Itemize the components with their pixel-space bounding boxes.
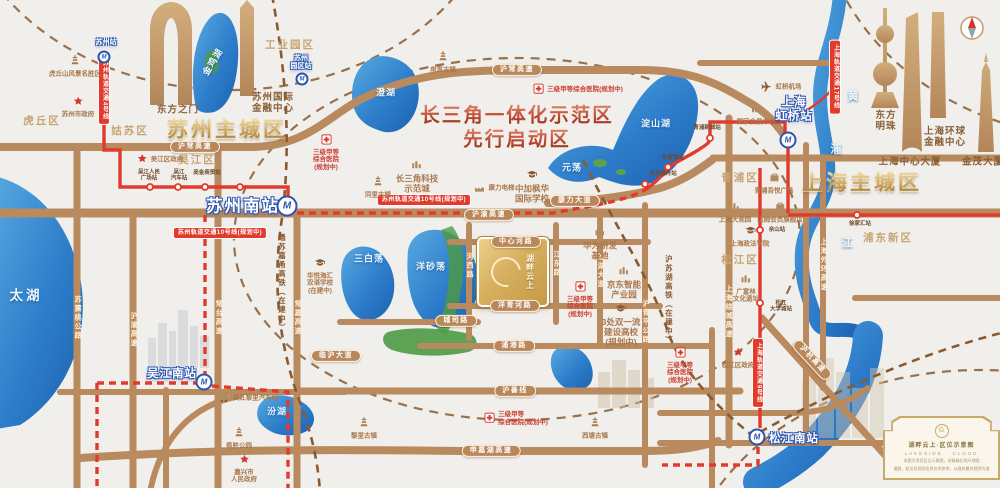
road-pill-text: 城司路 [443,317,469,325]
road-pill-text: 申嘉湖高速 [470,447,513,455]
poi-label: 西塘古镇 [582,432,608,440]
poi-label: 国家会展中心 [737,118,776,126]
metro-station-icon: M [749,429,766,446]
demo-text: 长三角一体化示范区 [420,105,614,128]
vroad-text: 沪渝高速 [129,312,137,348]
metro-station-icon: M [780,132,797,149]
poi-label: 建设高校 [602,327,641,337]
district: 工业园区 [265,39,315,51]
station-minor-text: 汽车站 [171,176,188,182]
station-name: 苏州园区站 [291,55,312,72]
road-pill: 临沪大道 [311,350,361,362]
station-minor: 东方绿舟站 [649,171,677,177]
poi-pagoda: 西塘古镇 [582,416,608,439]
vroad: 沪青平公路 [641,300,649,345]
poi-city: 长三角科技示范城 [396,158,439,193]
lake-label: 元荡 [562,163,582,174]
poi-label: 人民政府 [231,476,257,484]
poi-pagoda: 甪直古镇 [430,50,456,73]
river-char: 江 [842,238,853,251]
road-pill-text: 沪常高速 [178,143,212,151]
cross-icon [675,347,686,361]
landmark-label: 东方之门 [157,104,199,115]
poi-label: 基地 [583,251,617,261]
landmark-label-text: 东方 [875,110,896,121]
river-char: 浦 [831,144,842,157]
plaque-subtitle: LAKESIDE · CLOUD [905,451,979,456]
district-text: 工业园区 [265,39,315,51]
cross-icon [575,281,586,295]
poi-label: 文化遗址 [733,296,759,304]
road-pill-text: 临沪大道 [319,352,353,360]
oriental-pearl-illustration [871,8,899,108]
station-minor-text: 朱家角站 [662,155,684,161]
poi-cross: 三级甲等综合医院(规划中) [533,83,623,97]
lake-label-text: 太湖 [10,288,43,304]
district: 浦东新区 [863,232,913,244]
pagoda-icon [437,50,449,65]
poi-label: 揽胜公园 [226,442,252,450]
swfc-illustration [930,12,946,118]
station-major lg-text: 苏州南站 [206,197,280,216]
station-major md-text: 上海 [775,96,813,110]
cross-icon [484,412,495,426]
jinmao-illustration [978,52,994,152]
poi-label: (规划中) [313,164,339,172]
landmark-label-text: 明珠 [875,121,896,132]
poi-cap: 上海政法学院 [731,224,770,247]
district: 虎丘区 [23,115,61,127]
plaque-logo-icon: G [935,424,949,438]
lake-label: 洋砂荡 [416,262,446,273]
landmark-label-text: 金融中心 [924,137,966,148]
vroad-text: 上海外环高速 [819,238,827,292]
landmark-label: 上海中心大厦 [878,156,941,167]
plaque-note-2: 道路、轨交及规划信息仅供参考，以政府最终规划为准 [888,466,996,472]
poi-cap: 3处双一流建设高校(规划中) [602,302,641,348]
road-pill-text: 沪善线 [502,387,528,395]
metro-box-text: 上海轨道交通9号线 [754,343,761,403]
cross-icon [533,83,544,97]
cap-icon [744,224,756,239]
vroad-text: 上海绕城高速 [724,285,732,339]
river-char-text: 江 [842,238,853,251]
poi-star: 嘉兴市人民政府 [231,454,257,484]
lake-label: 三白荡 [354,254,384,265]
landmark-label: 上海环球金融中心 [924,126,966,148]
vroad-text: 常台高速 [214,300,222,336]
lake-label: 澄湖 [376,88,396,99]
metro-box-text: 苏州轨道交通10号线(规划中) [382,196,466,203]
factory-icon [474,182,486,197]
vroad: 江东路 [552,251,560,278]
gold-text: 苏州主城区 [167,119,287,144]
metro-box-text: 上海轨道交通17号线 [831,45,838,110]
poi-label: 综合医院(规划中) [498,419,548,427]
poi-label: 黎里古镇 [351,432,377,440]
lake-label-text: 元荡 [562,163,582,174]
station-name: 苏州南站 [206,197,280,216]
poi-label: 虹桥机场 [776,84,802,92]
road-pill: 中心河路 [491,236,541,248]
cap-icon [314,256,326,271]
station-minor-text: 庞金商贸站 [193,170,221,176]
road-pill: 洋青河路 [490,300,540,312]
poi-plane: 虹桥机场 [761,81,802,96]
poi-star: 苏州市政府 [62,96,95,118]
map-plaque: G 湖畔云上·区位示意图 LAKESIDE · CLOUD 本图为项目区位示意图… [883,416,1000,480]
metro-box: 苏州轨道交通10号线(规划中) [173,227,267,239]
poi-label: 国际学校 [515,194,549,204]
landmark-label-text: 上海环球 [924,126,966,137]
vroad: 常台高速 [214,300,222,336]
district-text: 虎丘区 [23,115,61,127]
lake-label-text: 汾湖 [267,407,287,418]
station-major sm-text: 园区站 [291,63,312,71]
rail-label-text: 通苏嘉甬高铁（在建中） [277,234,286,333]
vroad: 上海外环高速 [819,238,827,292]
river-char-text: 黄 [848,91,859,104]
landmark-label-text: 金茂大厦 [962,156,1000,167]
region-title: 长三角一体化示范区 [420,105,614,128]
district-text: 吴江区 [178,154,216,166]
poi-label: (规划中) [602,338,641,348]
poi-label: 苏州市政府 [62,110,95,118]
poi-label: (规划中) [567,311,593,319]
station-minor-text: 佘山站 [769,227,786,233]
poi-factory: 康力电梯 [474,182,515,197]
district: 吴江区 [178,154,216,166]
station-minor: 庞金商贸站 [193,170,221,176]
region-title: 苏州主城区 [167,119,287,144]
vroad-text: 常嘉高速 [293,300,301,336]
poi-label: 产业园 [607,290,641,300]
poi-label: 吴江区政府 [151,156,184,164]
station-name: 苏州站 [96,39,117,47]
poi-label: 松江区政府 [722,361,755,369]
lake-label-text: 洋砂荡 [416,262,446,273]
poi-label: 康力电梯 [489,185,515,193]
lake-label-text: 澄湖 [376,88,396,99]
poi-label: 同里古镇 [365,191,391,199]
vroad: 常嘉高速 [293,300,301,336]
poi-label: 上海政法学院 [731,240,770,248]
road-pill-text: 沪常高速 [500,66,534,74]
station-name: 上海虹桥站 [775,96,813,123]
road-pill-text: 康力大道 [558,197,592,205]
vroad-text: 苏震桃公路 [73,296,81,341]
metro-box-text: 苏州轨道交通4号线 [100,60,107,120]
landmark-label-text: 苏州国际 [252,92,294,103]
pagoda-icon [233,426,245,441]
vroad: 上海绕城高速 [724,285,732,339]
lake-label: 淀山湖 [641,119,671,130]
landmark-label: 苏州国际金融中心 [252,92,294,114]
poi-cross: 三级甲等综合医院(规划中) [484,411,548,427]
station-name: 吴江南站 [147,368,197,382]
station-minor-text: 徐家汇站 [849,221,871,227]
poi-label: (在建中) [307,288,333,296]
poi-star: 松江区政府 [722,347,755,369]
road-pill: 申嘉湖高速 [462,445,521,457]
station-minor-text: 大学城站 [770,307,792,313]
station-minor: 青浦新城站 [693,125,721,131]
bus-icon [218,392,230,407]
district: 青浦区 [721,172,759,184]
city-icon [618,264,630,278]
poi-star: 吴江区政府 [137,153,184,167]
poi-label: (规划中) [667,377,693,385]
pagoda-icon [589,416,601,431]
landmark-label-text: 上海中心大厦 [878,156,941,167]
road-pill: 沪常高速 [492,64,542,76]
cap-icon [615,302,627,316]
city-icon [740,272,752,287]
region-title: 先行启动区 [463,129,571,152]
mall-icon [774,200,786,215]
poi-label: 吴江黎里汽车站 [233,395,279,403]
station-minor: 徐家汇站 [849,221,871,227]
lake-label: 太湖 [10,288,43,304]
poi-label: 示范城 [396,184,439,194]
star-icon [239,454,250,468]
poi-label: 山姆会员旗舰店 [757,216,803,224]
vroad-text: 河西路 [465,253,473,280]
poi-label: 甪直古镇 [430,66,456,74]
location-map: 湖畔云上 G 湖畔云上·区位示意图 LAKESIDE · CLOUD 本图为项目… [0,0,1000,488]
station-minor: 佘山站 [769,227,786,233]
poi-city: 广富林文化遗址 [733,272,759,303]
station-minor-text: 青浦新城站 [693,125,721,131]
pagoda-icon [69,54,81,69]
rail-label: 通苏嘉甬高铁（在建中） [277,234,286,333]
mall-icon [768,171,780,186]
poi-city: 京东智能产业园 [607,264,641,299]
vroad-text: 江东路 [552,251,560,278]
station-major md-text: 虹桥站 [775,110,813,124]
plaque-note-1: 本图为项目区位示意图，非精确比例尺地图 [898,458,986,464]
project-name: 湖畔云上 [525,254,536,290]
vroad: 河西路 [465,253,473,280]
star-icon [73,96,84,110]
pagoda-icon [372,175,384,190]
road-pill-text: 洋青河路 [498,302,532,310]
landmark-label: 东方明珠 [875,110,896,132]
city-icon [411,158,423,172]
suzhou-ifc-illustration [240,0,254,96]
poi-cross: 三级甲等综合医院(规划中) [567,281,593,319]
gold-text: 上海主城区 [802,172,922,197]
vroad: 苏震桃公路 [73,296,81,341]
poi-mall: 山姆会员旗舰店 [757,200,803,223]
landmark-label-text: 东方之门 [157,104,199,115]
river-char: 黄 [848,91,859,104]
river-char-text: 浦 [831,144,842,157]
station-minor: 松江大学城站 [770,301,792,314]
shanghai-tower-illustration [902,12,922,152]
poi-label: 中加枫华 [515,183,549,193]
poi-bus: 吴江黎里汽车站 [218,392,279,407]
pagoda-icon [358,416,370,431]
landmark-label-text: 金融中心 [252,103,294,114]
cross-icon [321,134,332,148]
cap-icon [526,168,538,182]
station-minor: 朱家角站 [662,155,684,161]
road-pill-text: 中心河路 [499,238,533,246]
road-pill: 城司路 [435,315,477,327]
vroad-text: 沪青平公路 [641,300,649,345]
city-icon [750,102,762,117]
poi-city: 上海大观园 [719,200,752,223]
poi-cross: 三级甲等综合医院(规划中) [667,347,693,385]
metro-box: 苏州轨道交通10号线(规划中) [377,194,471,206]
poi-pagoda: 同里古镇 [365,175,391,198]
district-text: 青浦区 [721,172,759,184]
poi-label: 3处双一流 [602,317,641,327]
poi-cap: 华悦海汇双语学校(在建中) [307,256,333,295]
poi-label: 虎丘山风景名胜区 [49,70,101,78]
metro-box-text: 苏州轨道交通10号线(规划中) [178,229,262,236]
road-pill: 康力大道 [550,195,600,207]
lake-label-text: 淀山湖 [641,119,671,130]
station-minor-text: 广场站 [138,176,160,182]
road-pill: 沪渝高速 [464,209,514,221]
poi-label: 京东智能 [607,279,641,289]
metro-station-icon: M [296,73,309,86]
city-icon [729,200,741,215]
rail-label: 沪苏湖高铁（在建中） [664,255,673,345]
station-name: 松江南站 [769,433,819,447]
metro-box: 上海轨道交通17号线 [829,40,841,115]
city-icon [594,225,606,239]
star-icon [137,153,148,167]
road-pill-text: 沪渝高速 [472,211,506,219]
lake-label: 汾湖 [267,407,287,418]
poi-cap: 中加枫华国际学校 [515,168,549,203]
poi-label: 上海大观园 [719,216,752,224]
district-text: 姑苏区 [111,125,149,137]
lake-label-text: 三白荡 [354,254,384,265]
poi-label: 三级甲等 [498,411,548,419]
demo-text: 先行启动区 [463,129,571,152]
compass-icon [958,14,986,42]
vroad: 沪渝高速 [129,312,137,348]
district: 姑苏区 [111,125,149,137]
metro-station-icon: M [196,374,213,391]
poi-cross: 三级甲等综合医院(规划中) [313,134,339,172]
poi-label: 长三角科技 [396,173,439,183]
road-pill: 浦港路 [493,340,535,352]
poi-city: 国家会展中心 [737,102,776,125]
road-pill: 沪常高速 [170,141,220,153]
plaque-title: 湖畔云上·区位示意图 [909,440,975,449]
station-minor: 吴江汽车站 [171,170,188,183]
station-major md-text: 松江南站 [769,433,819,447]
star-icon [733,347,744,361]
metro-station-icon: M [98,51,111,64]
poi-label: 华为研发 [583,240,617,250]
station-major sm-text: 苏州 [291,55,312,63]
road-pill-text: 浦港路 [501,342,527,350]
poi-city: 华为研发基地 [583,225,617,260]
poi-mall: 青浦吾悦广场 [755,171,794,194]
region-title: 上海主城区 [802,172,922,197]
station-minor: 吴江人民广场站 [138,170,160,183]
poi-pagoda: 黎里古镇 [351,416,377,439]
district: 松江区 [721,254,759,266]
station-minor-text: 东方绿舟站 [649,171,677,177]
landmark-label: 金茂大厦 [962,156,1000,167]
station-major md-text: 吴江南站 [147,368,197,382]
rail-label-text: 沪苏湖高铁（在建中） [664,255,673,345]
plane-icon [761,81,773,96]
metro-station-icon: M [277,196,298,217]
district-text: 浦东新区 [863,232,913,244]
poi-pagoda: 揽胜公园 [226,426,252,449]
poi-pagoda: 虎丘山风景名胜区 [49,54,101,77]
station-major sm-text: 苏州站 [96,39,117,47]
project-logo-icon [485,251,527,293]
poi-label: 青浦吾悦广场 [755,187,794,195]
poi-label: 三级甲等综合医院(规划中) [547,86,623,94]
gate-of-orient-illustration [150,2,192,105]
district-text: 松江区 [721,254,759,266]
road-pill: 沪善线 [494,385,536,397]
